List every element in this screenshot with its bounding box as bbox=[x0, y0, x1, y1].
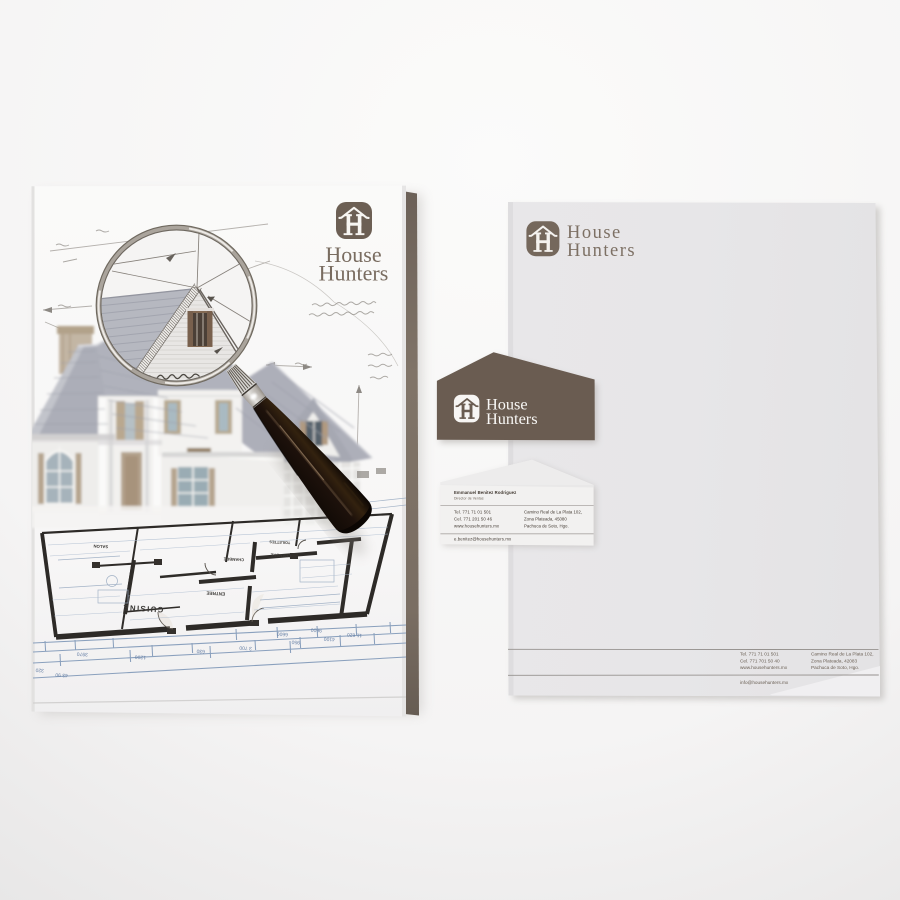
svg-text:Zona Plateada, 45080: Zona Plateada, 45080 bbox=[524, 516, 567, 521]
svg-text:6600: 6600 bbox=[276, 630, 288, 637]
svg-text:ENTREE: ENTREE bbox=[206, 591, 225, 597]
svg-text:630: 630 bbox=[196, 648, 205, 654]
svg-text:Emmanuel Benitez Rodriguez: Emmanuel Benitez Rodriguez bbox=[454, 490, 516, 495]
svg-text:Camino Real de La Plata 102,: Camino Real de La Plata 102, bbox=[811, 652, 874, 657]
svg-text:Hunters: Hunters bbox=[319, 260, 389, 285]
svg-text:info@househunters.mx: info@househunters.mx bbox=[740, 680, 789, 685]
svg-text:Cel. 771 201 50 46: Cel. 771 201 50 46 bbox=[454, 516, 493, 521]
svg-text:Hunters: Hunters bbox=[567, 241, 636, 261]
svg-text:www.househunters.mx: www.househunters.mx bbox=[454, 523, 500, 528]
svg-text:3970: 3970 bbox=[76, 650, 88, 657]
svg-text:e.benitez@househunters.mx: e.benitez@househunters.mx bbox=[454, 537, 512, 542]
svg-text:House: House bbox=[567, 223, 622, 243]
svg-text:Tel. 771 71 01 501: Tel. 771 71 01 501 bbox=[740, 652, 779, 657]
svg-text:Pachuca de Soto, Hgo.: Pachuca de Soto, Hgo. bbox=[811, 665, 859, 670]
svg-text:1200: 1200 bbox=[134, 653, 146, 660]
svg-text:11 620: 11 620 bbox=[347, 631, 362, 638]
svg-text:Tel. 771 71 01 501: Tel. 771 71 01 501 bbox=[454, 509, 492, 514]
svg-text:950: 950 bbox=[291, 639, 300, 645]
svg-text:43 90: 43 90 bbox=[55, 671, 68, 678]
svg-text:Camino Real de La Plata 102,: Camino Real de La Plata 102, bbox=[524, 509, 582, 514]
svg-text:4100: 4100 bbox=[323, 635, 335, 642]
svg-text:9600: 9600 bbox=[310, 626, 322, 633]
svg-text:Cel. 771 701 50 40: Cel. 771 701 50 40 bbox=[740, 658, 780, 663]
svg-text:Pachuca de Soto, Hgo.: Pachuca de Soto, Hgo. bbox=[524, 523, 569, 528]
svg-text:www.househunters.mx: www.househunters.mx bbox=[740, 665, 788, 670]
svg-text:SALON: SALON bbox=[93, 544, 108, 550]
svg-text:Zona Plateada, 42083: Zona Plateada, 42083 bbox=[811, 658, 858, 663]
svg-text:Director de Ventas: Director de Ventas bbox=[454, 496, 484, 500]
svg-text:3 700: 3 700 bbox=[239, 644, 252, 651]
svg-text:320: 320 bbox=[35, 667, 44, 673]
svg-text:Hunters: Hunters bbox=[486, 409, 538, 428]
